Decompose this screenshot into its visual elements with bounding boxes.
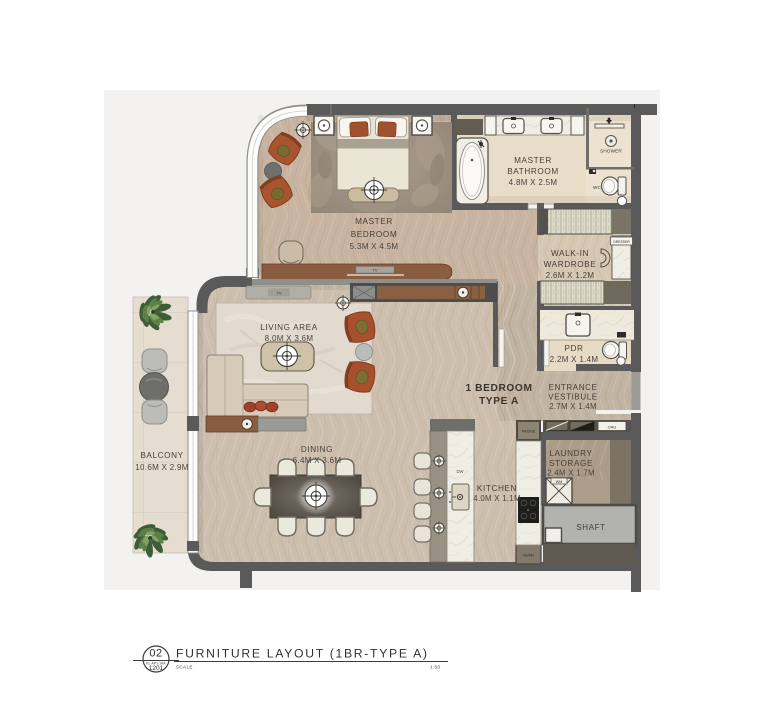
svg-text:SHAFT: SHAFT (576, 523, 605, 532)
svg-text:2.7M X 1.4M: 2.7M X 1.4M (549, 402, 597, 411)
svg-text:1:50: 1:50 (430, 665, 440, 670)
svg-text:CRU: CRU (608, 425, 617, 430)
svg-text:6.4M X 3.6M: 6.4M X 3.6M (293, 456, 342, 465)
svg-text:LIVING AREA: LIVING AREA (260, 323, 318, 332)
svg-text:FURNITURE LAYOUT (1BR-TYPE A): FURNITURE LAYOUT (1BR-TYPE A) (176, 647, 429, 661)
svg-text:WC: WC (593, 185, 602, 190)
svg-text:4.8M X 2.5M: 4.8M X 2.5M (509, 178, 558, 187)
svg-text:1 BEDROOM: 1 BEDROOM (465, 383, 532, 394)
svg-text:PDR: PDR (564, 344, 583, 353)
svg-text:5.3M X 4.5M: 5.3M X 4.5M (350, 242, 399, 251)
svg-text:VESTIBULE: VESTIBULE (548, 393, 597, 402)
svg-text:WALK-IN: WALK-IN (551, 249, 589, 258)
svg-text:10.6M X 2.9M: 10.6M X 2.9M (135, 463, 188, 472)
svg-text:DW: DW (457, 469, 464, 474)
svg-text:2.2M X 1.4M: 2.2M X 1.4M (550, 355, 599, 364)
svg-text:8.0M X 3.6M: 8.0M X 3.6M (265, 334, 314, 343)
svg-text:BATHROOM: BATHROOM (507, 167, 559, 176)
svg-text:FRIDGE: FRIDGE (522, 430, 536, 434)
svg-text:LAUNDRY: LAUNDRY (549, 449, 592, 458)
svg-text:1201: 1201 (149, 665, 164, 672)
svg-text:4.0M X 1.1M: 4.0M X 1.1M (473, 494, 521, 503)
svg-text:DRESSER: DRESSER (613, 240, 630, 244)
svg-text:MASTER: MASTER (355, 217, 393, 226)
svg-text:STORAGE: STORAGE (549, 459, 593, 468)
svg-text:SHOWER: SHOWER (600, 149, 622, 154)
svg-text:KITCHEN: KITCHEN (477, 484, 517, 493)
svg-text:WARDROBE: WARDROBE (544, 260, 597, 269)
svg-text:BEDROOM: BEDROOM (351, 230, 398, 239)
svg-text:OVEN: OVEN (523, 554, 534, 558)
svg-text:WM: WM (556, 480, 562, 484)
svg-text:MASTER: MASTER (514, 156, 552, 165)
svg-text:ENTRANCE: ENTRANCE (549, 383, 598, 392)
svg-text:02: 02 (149, 648, 162, 660)
svg-text:TYPE A: TYPE A (479, 396, 519, 407)
svg-text:2.6M X 1.2M: 2.6M X 1.2M (546, 271, 595, 280)
svg-text:TV: TV (276, 291, 281, 296)
svg-text:BALCONY: BALCONY (140, 451, 183, 460)
svg-text:2.4M X 1.7M: 2.4M X 1.7M (547, 469, 595, 478)
svg-text:SCALE: SCALE (176, 665, 193, 670)
svg-text:TV: TV (372, 268, 377, 273)
svg-text:DINING: DINING (301, 445, 333, 454)
